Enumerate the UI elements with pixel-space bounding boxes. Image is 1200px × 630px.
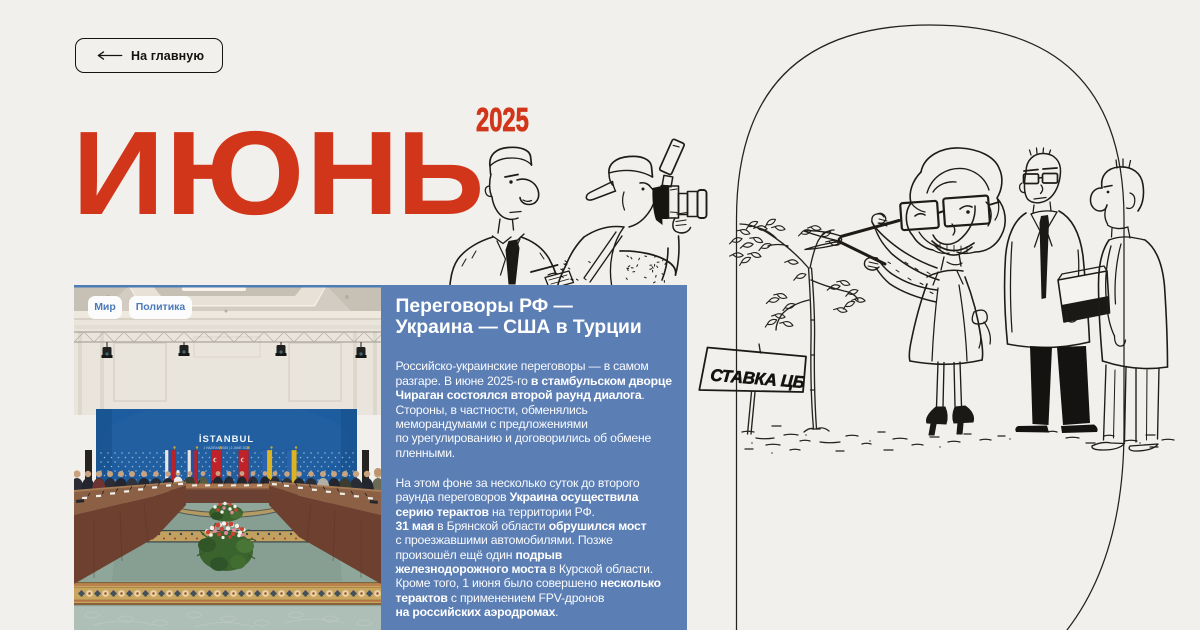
- svg-text:СТАВКА ЦБ: СТАВКА ЦБ: [710, 366, 806, 393]
- svg-text:İSTANBUL: İSTANBUL: [199, 434, 254, 445]
- svg-text:1 HAZİRAN 2025 | 2 JUNE 2025: 1 HAZİRAN 2025 | 2 JUNE 2025: [203, 445, 249, 450]
